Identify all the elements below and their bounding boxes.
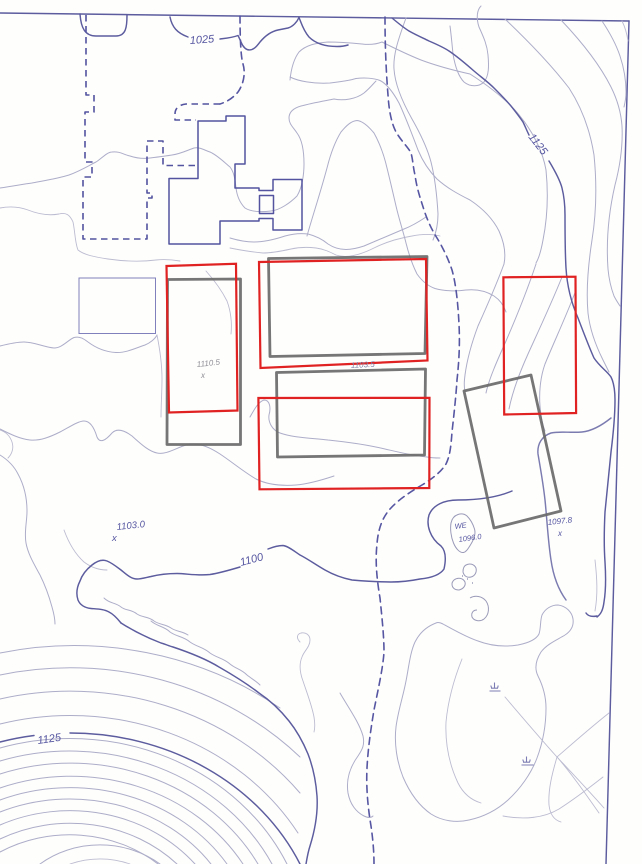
svg-text:WE: WE (454, 520, 468, 531)
svg-text:1025: 1025 (189, 33, 215, 47)
svg-text:1103.5: 1103.5 (351, 360, 376, 370)
